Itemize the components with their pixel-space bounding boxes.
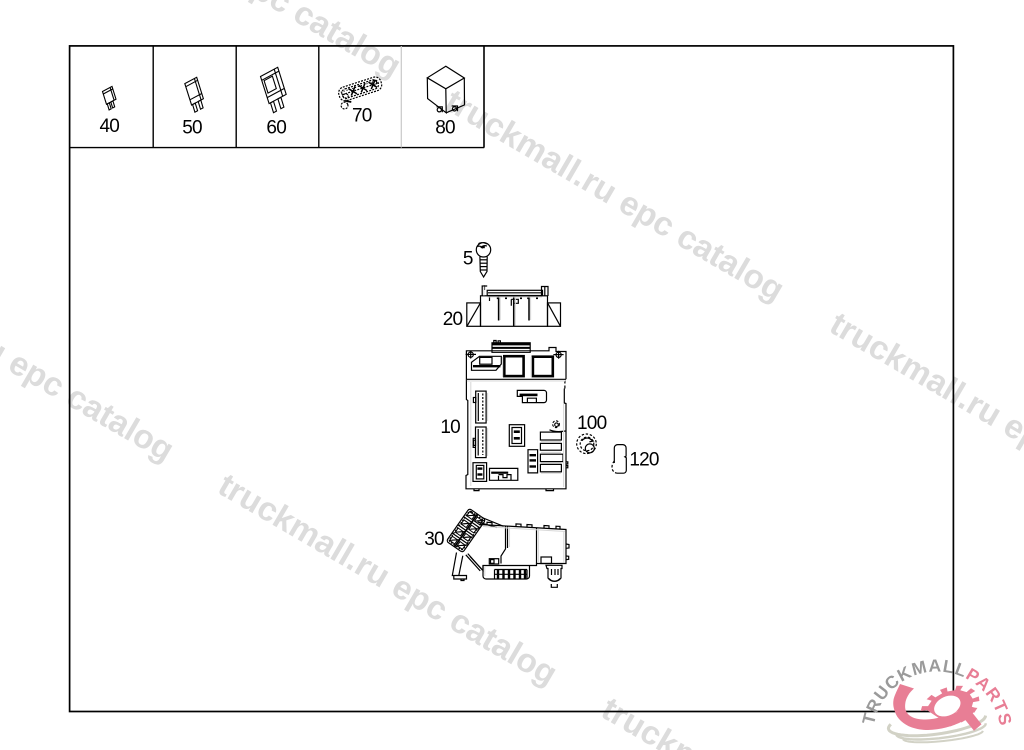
svg-text:truckmall.ru epc catalog: truckmall.ru epc catalog: [212, 467, 563, 693]
svg-text:70: 70: [352, 105, 372, 126]
svg-text:80: 80: [435, 118, 455, 139]
svg-text:10: 10: [440, 417, 460, 438]
svg-text:5: 5: [463, 249, 473, 270]
svg-text:truckmall.ru epc catalog: truckmall.ru epc catalog: [56, 0, 407, 85]
svg-text:truckmall.ru epc catalog: truckmall.ru epc catalog: [823, 305, 1024, 531]
svg-text:20: 20: [443, 309, 463, 330]
svg-text:120: 120: [629, 449, 659, 470]
svg-text:60: 60: [266, 117, 286, 138]
svg-text:truckmall.ru epc catalog: truckmall.ru epc catalog: [439, 83, 790, 309]
svg-text:truckmall.ru epc catalog: truckmall.ru epc catalog: [0, 243, 180, 469]
svg-text:50: 50: [182, 118, 202, 139]
svg-text:30: 30: [424, 529, 444, 550]
svg-text:TRUCKMALLPARTS: TRUCKMALLPARTS: [858, 655, 1016, 728]
svg-text:40: 40: [100, 116, 120, 137]
svg-text:100: 100: [577, 413, 607, 434]
